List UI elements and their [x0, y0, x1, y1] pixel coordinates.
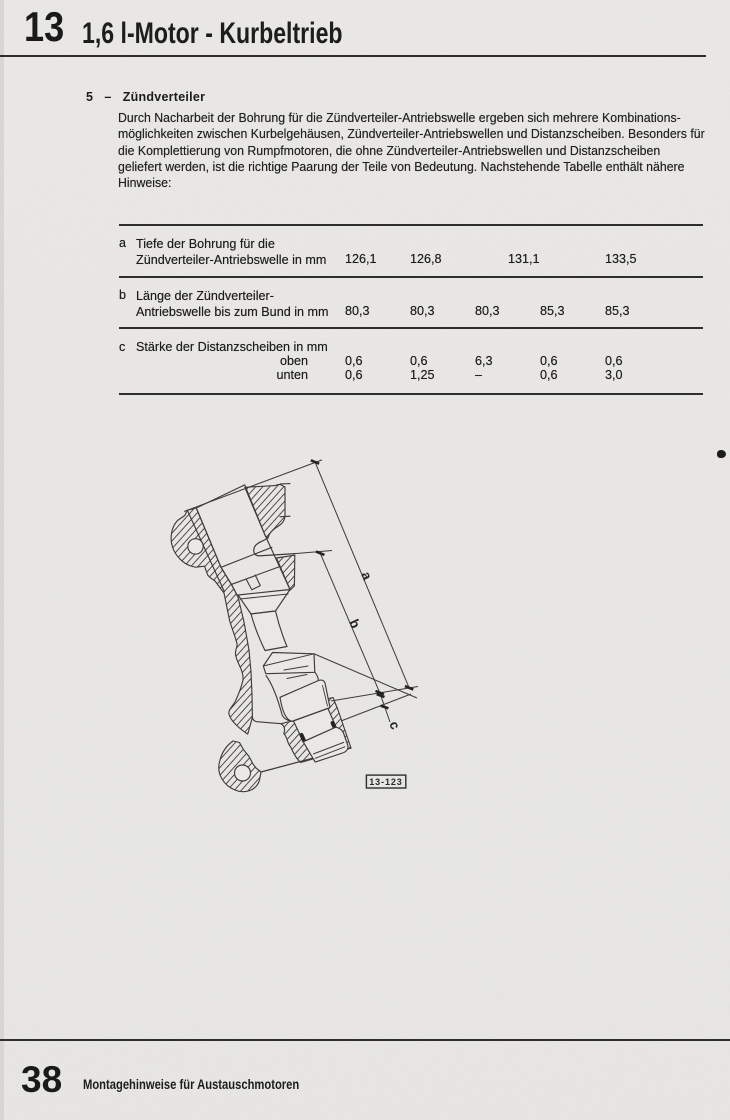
- svg-text:13-123: 13-123: [369, 777, 402, 787]
- svg-text:c: c: [386, 719, 403, 732]
